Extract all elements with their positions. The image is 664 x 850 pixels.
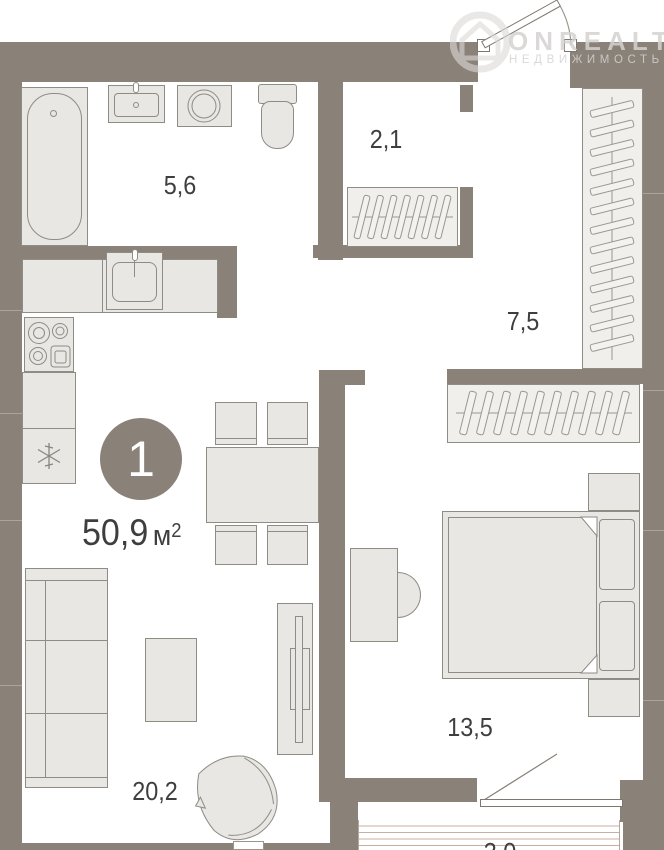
coffee-table	[145, 638, 197, 722]
total-area-label: 50,9м2	[82, 514, 181, 551]
room-area-wardrobe: 2,1	[370, 126, 403, 152]
dining-table	[206, 447, 319, 523]
total-area-value: 50,9	[82, 512, 148, 553]
sofa	[25, 568, 108, 788]
room-area-bathroom: 5,6	[164, 172, 197, 198]
hangers-icon	[583, 89, 642, 368]
wall-seam	[643, 700, 664, 701]
pillow	[599, 601, 635, 671]
balcony-door-leaf	[484, 754, 557, 800]
burners-icon	[25, 318, 73, 371]
room-count-badge: 1	[100, 418, 182, 500]
hangers-icon	[448, 385, 639, 442]
total-area-sup: 2	[171, 520, 181, 542]
wall-wardrobe-left	[318, 82, 343, 260]
chair-back	[268, 438, 307, 439]
bathroom-sink-drain	[133, 102, 139, 108]
wall-bedroom-bottom	[319, 778, 477, 802]
room-area-hallway: 7,5	[507, 308, 540, 334]
floorplan: 5,6 2,1 7,5 13,5 20,2 3,0 1 50,9м2 ONREA…	[0, 0, 664, 850]
bed-blanket	[448, 517, 597, 673]
counter-divider	[102, 259, 103, 313]
wall-seam	[0, 685, 22, 686]
wall-seam	[0, 520, 22, 521]
entrance-door-leaf	[481, 0, 561, 48]
wall-closet-strip	[447, 369, 643, 384]
pillow	[599, 519, 635, 590]
dining-chair	[215, 402, 257, 445]
snowflake-icon	[23, 429, 75, 483]
wall-top-left	[0, 42, 478, 82]
wall-seam	[643, 193, 664, 194]
toilet-bowl	[261, 101, 294, 149]
bathtub-drain	[50, 110, 57, 117]
total-area-unit: м	[153, 520, 171, 552]
room-area-balcony: 3,0	[484, 839, 517, 850]
wall-wardrobe-jamb-bottom	[460, 187, 473, 245]
sofa-cushion-line	[26, 713, 107, 714]
wall-right-outer	[643, 42, 664, 850]
wall-balcony-pier	[620, 780, 643, 822]
hallway-wardrobe	[582, 88, 643, 369]
washer-drum-icon	[178, 86, 231, 126]
faucet-icon	[132, 249, 138, 261]
wall-mid-cap	[319, 370, 365, 385]
kitchen-cabinet	[22, 372, 76, 429]
wall-mid-vertical	[319, 370, 345, 802]
tv-bar	[295, 616, 303, 743]
wall-kitchen-stub	[217, 246, 237, 318]
hangers-icon	[348, 188, 457, 246]
sofa-armrest-line	[25, 777, 108, 778]
room-area-bedroom: 13,5	[447, 714, 493, 740]
washing-machine	[177, 85, 232, 127]
fridge	[22, 428, 76, 484]
wall-balcony-left	[330, 802, 358, 850]
bedroom-wardrobe	[447, 384, 640, 443]
desk-chair	[398, 572, 421, 618]
sofa-armrest-line	[25, 580, 108, 581]
closet-rack	[347, 187, 458, 247]
nightstand	[588, 473, 640, 511]
dining-chair	[267, 402, 308, 445]
nightstand	[588, 679, 640, 717]
wall-left-outer	[0, 42, 22, 850]
wall-seam	[0, 310, 22, 311]
wall-seam	[643, 530, 664, 531]
chair-back	[216, 438, 256, 439]
wall-wardrobe-jamb-top	[460, 85, 473, 112]
balcony-door	[480, 799, 623, 807]
armchair	[188, 748, 288, 848]
stove	[24, 317, 74, 372]
chair-back	[268, 531, 307, 532]
faucet-icon	[133, 82, 139, 93]
dining-chair	[267, 525, 308, 565]
wall-balcony-right	[623, 822, 646, 850]
sofa-cushion-line	[26, 640, 107, 641]
wall-seam	[643, 390, 664, 391]
desk	[350, 548, 398, 642]
dining-chair	[215, 525, 257, 565]
kitchen-faucet-spout	[134, 261, 135, 277]
sofa-back-line	[45, 580, 46, 777]
wall-seam	[0, 413, 22, 414]
entrance-door-jamb-right	[564, 39, 577, 52]
room-area-living-kitchen: 20,2	[132, 778, 178, 804]
chair-back	[216, 531, 256, 532]
